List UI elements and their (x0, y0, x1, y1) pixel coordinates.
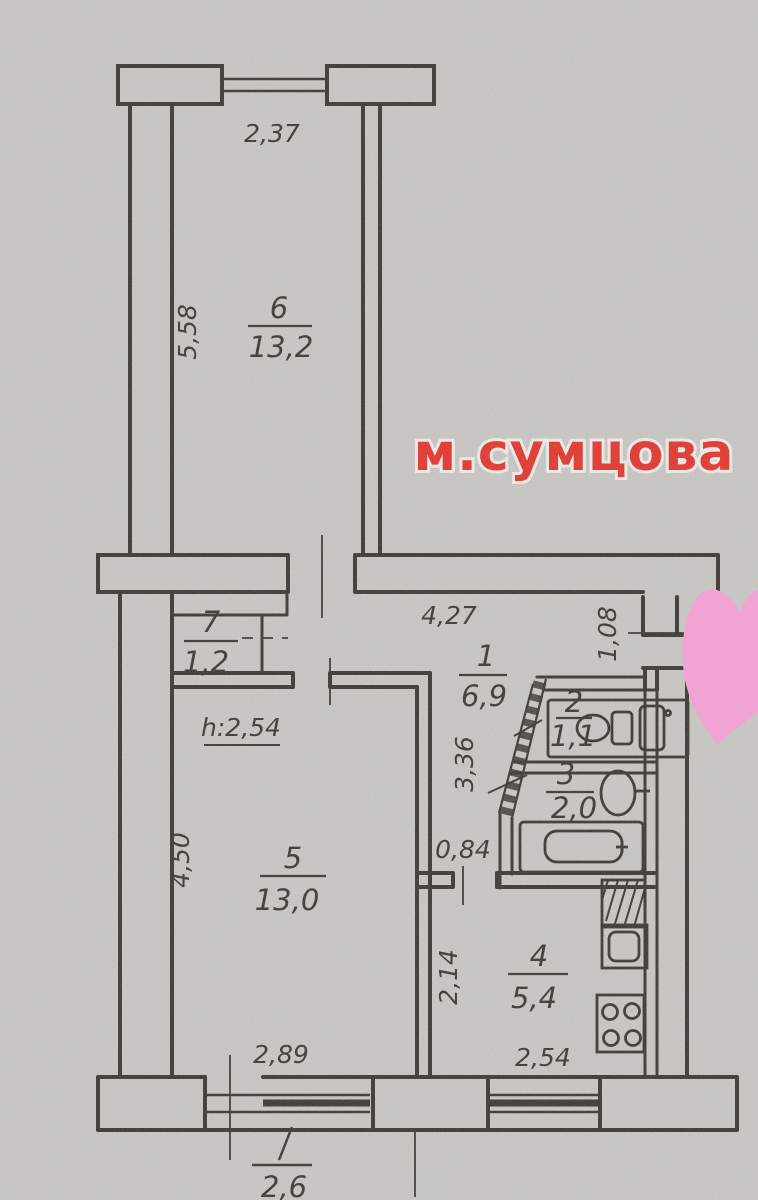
floor-plan-svg: 6 13,2 7 1,2 1 6,9 2 1,1 3 2,0 5 13,0 (0, 0, 758, 1200)
grain-overlay (0, 0, 758, 1200)
scanned-floor-plan-page: 6 13,2 7 1,2 1 6,9 2 1,1 3 2,0 5 13,0 (0, 0, 758, 1200)
